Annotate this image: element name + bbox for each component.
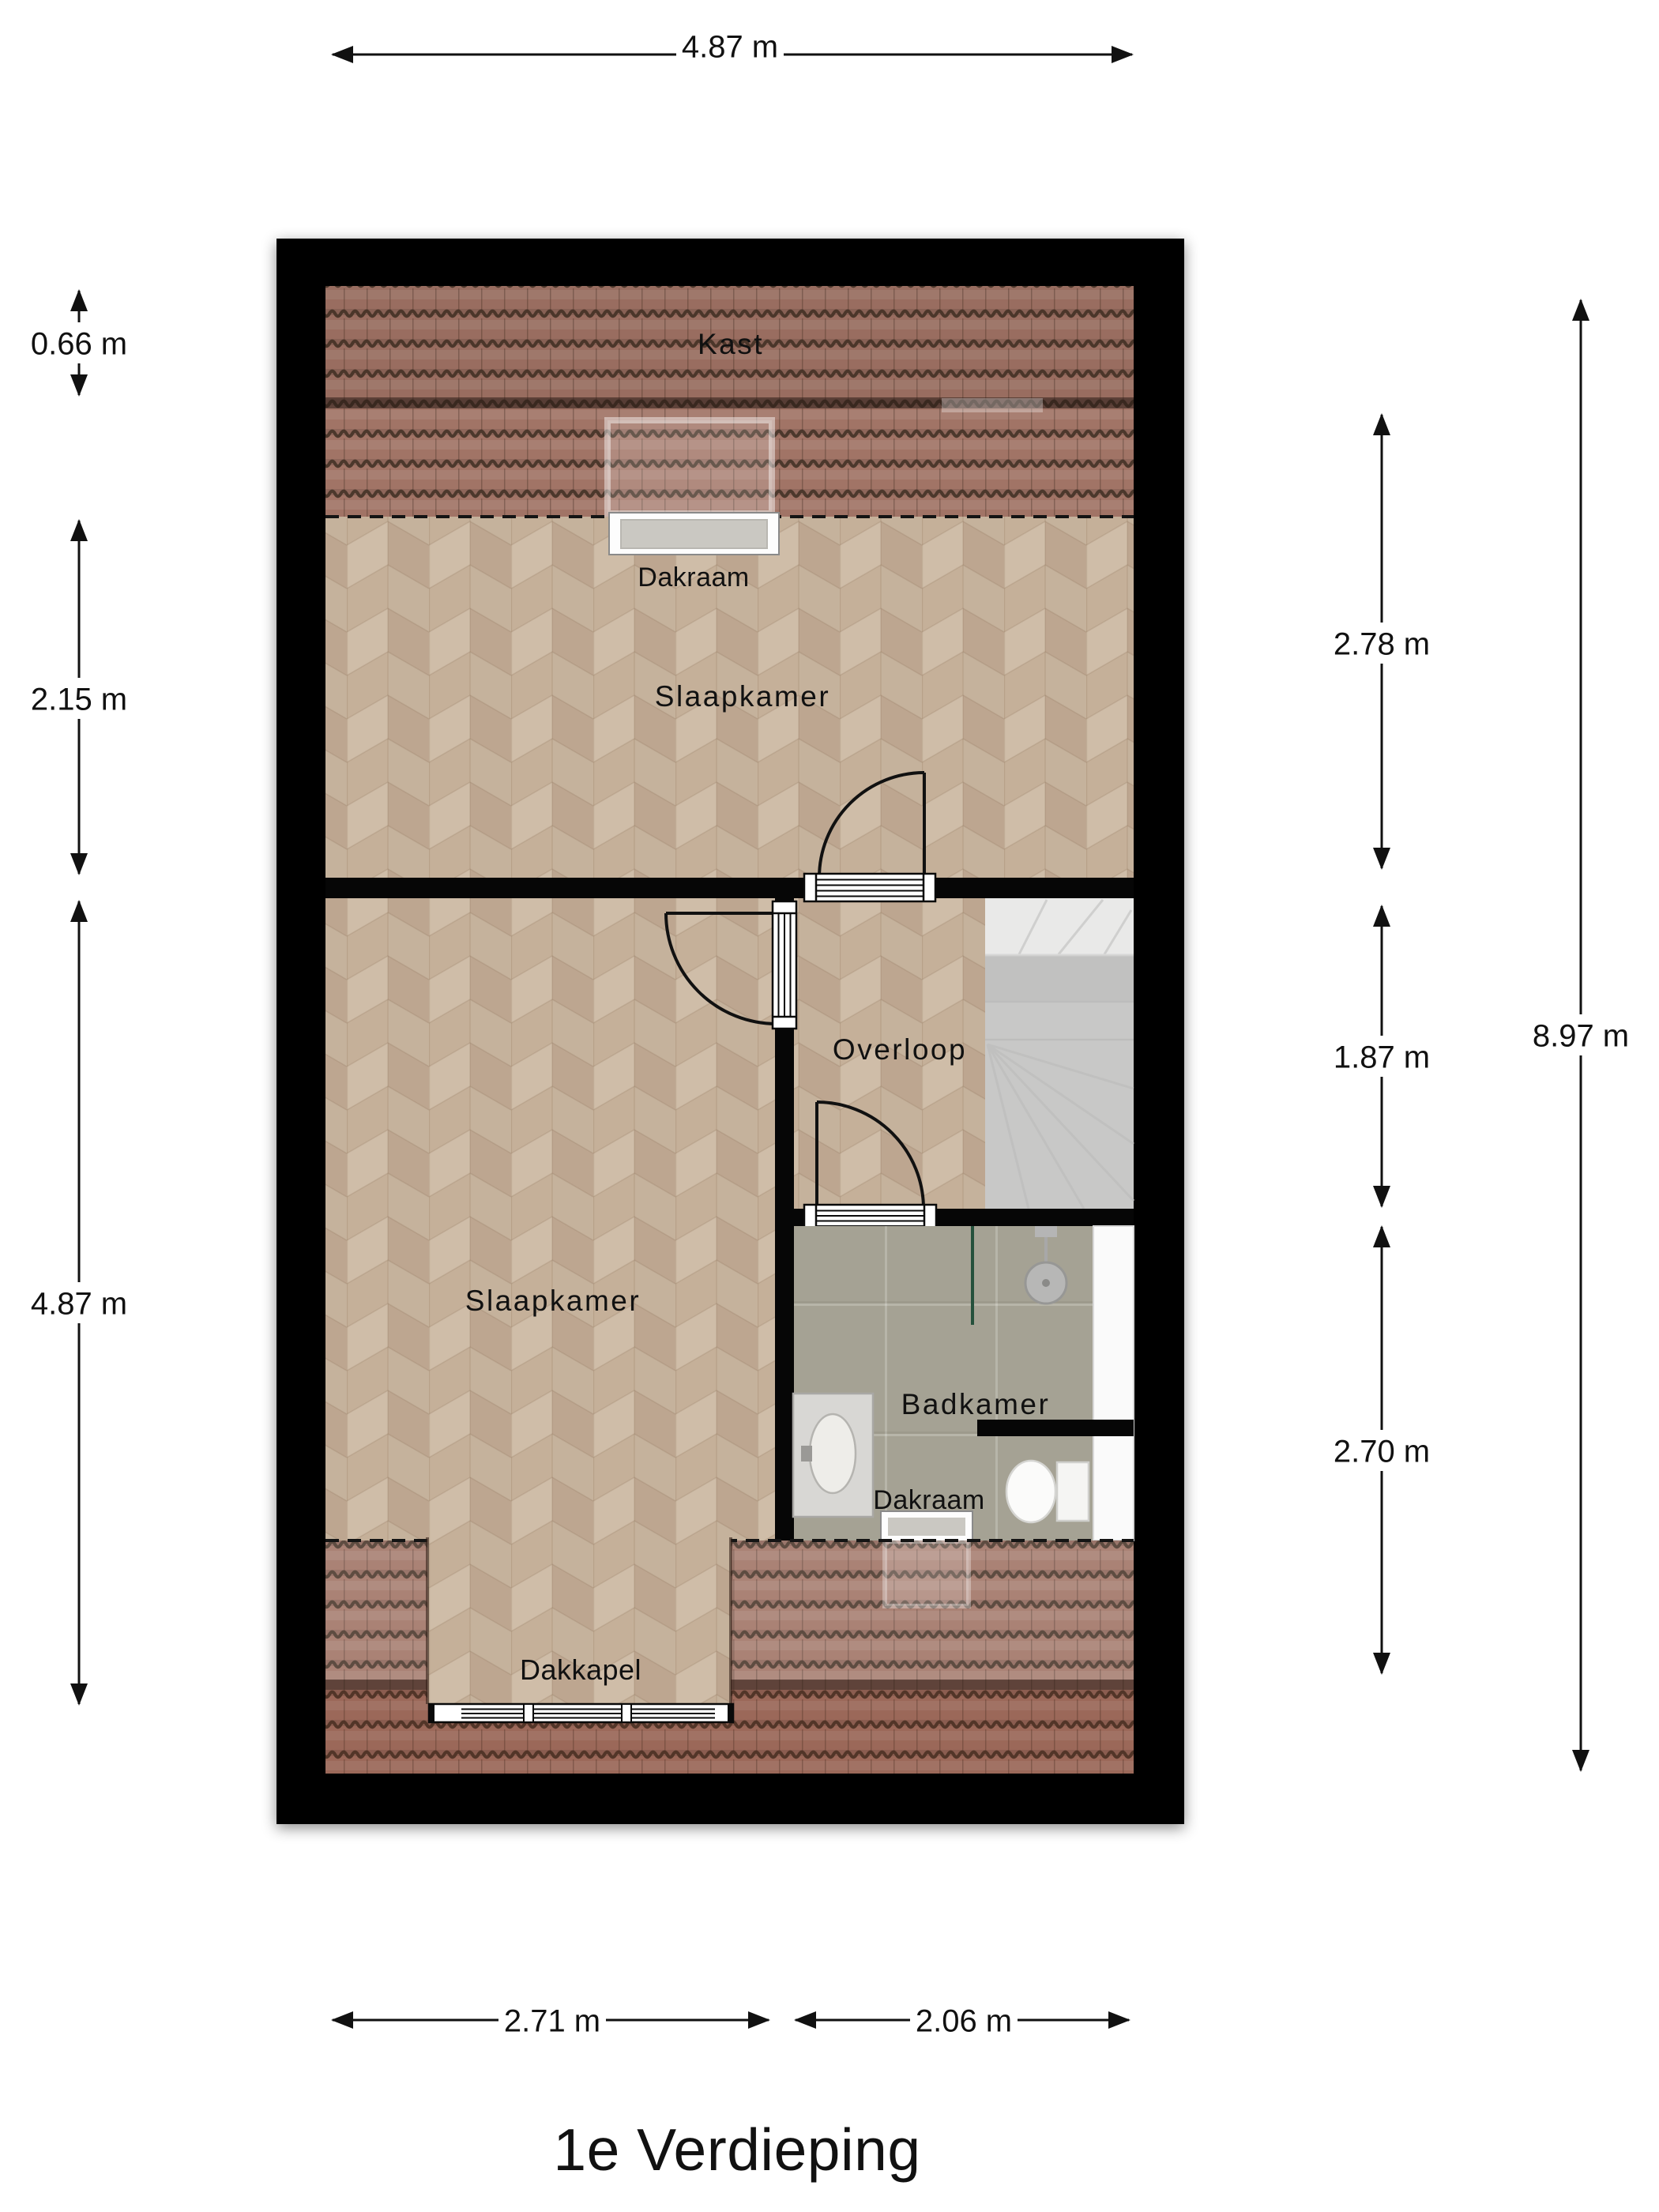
svg-text:Dakraam: Dakraam xyxy=(873,1485,984,1515)
svg-text:Slaapkamer: Slaapkamer xyxy=(465,1285,641,1317)
svg-text:Overloop: Overloop xyxy=(833,1033,967,1066)
svg-text:Slaapkamer: Slaapkamer xyxy=(655,680,830,713)
svg-text:4.87 m: 4.87 m xyxy=(31,1287,127,1322)
svg-text:0.66 m: 0.66 m xyxy=(31,327,127,362)
svg-text:4.87 m: 4.87 m xyxy=(682,30,778,65)
svg-text:1e Verdieping: 1e Verdieping xyxy=(553,2116,920,2183)
svg-text:2.06 m: 2.06 m xyxy=(916,2004,1012,2039)
svg-text:2.70 m: 2.70 m xyxy=(1334,1435,1430,1469)
svg-text:8.97 m: 8.97 m xyxy=(1533,1019,1629,1054)
svg-text:2.15 m: 2.15 m xyxy=(31,683,127,717)
svg-text:Dakraam: Dakraam xyxy=(638,562,749,592)
svg-text:Badkamer: Badkamer xyxy=(901,1388,1051,1420)
svg-text:Kast: Kast xyxy=(698,328,764,360)
svg-text:2.71 m: 2.71 m xyxy=(504,2004,600,2039)
svg-text:1.87 m: 1.87 m xyxy=(1334,1040,1430,1075)
svg-text:2.78 m: 2.78 m xyxy=(1334,627,1430,662)
svg-text:Dakkapel: Dakkapel xyxy=(520,1653,641,1686)
